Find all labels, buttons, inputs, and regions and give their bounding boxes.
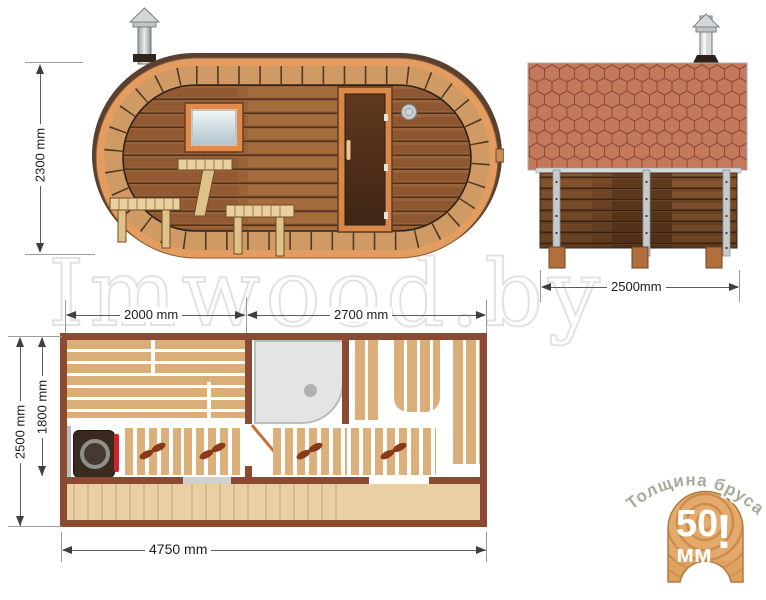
arrow-right-icon [476, 546, 486, 554]
dim-section-right-label: 2700 mm [330, 307, 392, 322]
shingle-roof [528, 63, 747, 170]
door-opening [369, 477, 429, 484]
wall-lamp-icon [402, 105, 417, 120]
dim-end-width-label: 2500mm [607, 279, 666, 294]
arrow-down-icon [38, 466, 46, 476]
arrow-right-icon [235, 311, 245, 319]
footprints-icon [381, 439, 407, 465]
shower-wall [342, 340, 349, 424]
badge-unit: мм [676, 541, 712, 568]
dim-length-line [63, 550, 486, 551]
threshold [183, 477, 231, 484]
door-handle-icon [347, 140, 351, 160]
dim-outer-width-label: 2500 mm [13, 401, 28, 463]
floor-boards [191, 484, 257, 520]
floor-boards [73, 484, 177, 520]
floor-boards [265, 484, 337, 520]
bench-seam [207, 382, 211, 418]
dim-length-label: 4750 mm [145, 541, 211, 557]
heat-shield [67, 426, 71, 478]
window [185, 103, 243, 152]
side-elevation-view [88, 2, 504, 264]
duckboard [125, 428, 181, 475]
duckboard [351, 428, 436, 475]
ext-line [486, 532, 487, 562]
ext-line [486, 300, 487, 333]
ext-line [8, 526, 62, 527]
ext-line [25, 254, 95, 255]
drawing-canvas: Imwood.by [0, 0, 766, 600]
footprints-icon [200, 439, 226, 465]
thickness-badge: 50 мм ! Толщина бруса [615, 430, 765, 590]
stove-pipe-icon [80, 439, 110, 469]
roof-beam [536, 168, 741, 173]
arrow-right-icon [476, 311, 486, 319]
duckboard [273, 428, 347, 475]
bench-beside-shower [355, 340, 381, 420]
arrow-up-icon [38, 337, 46, 347]
ext-line [25, 62, 83, 63]
arrow-down-icon [16, 516, 24, 526]
corridor-floor [67, 484, 480, 520]
bench-rounded [394, 340, 440, 412]
stove-red-panel [114, 434, 119, 472]
side-chimney-icon [130, 8, 159, 64]
footprints-icon [140, 439, 166, 465]
partition-wall [245, 340, 252, 424]
arrow-left-icon [62, 546, 72, 554]
arrow-right-icon [729, 283, 739, 291]
bench-right-wall [453, 340, 480, 464]
footprints-icon [297, 439, 323, 465]
sauna-bench-top [67, 340, 245, 418]
support-feet [549, 247, 722, 268]
end-chimney-icon [692, 14, 720, 65]
end-elevation-view [522, 2, 754, 282]
arrow-up-icon [36, 64, 44, 74]
arrow-left-icon [66, 311, 76, 319]
dim-section-left-label: 2000 mm [120, 307, 182, 322]
ext-line [739, 270, 740, 302]
floor-plan [60, 333, 487, 527]
arrow-up-icon [16, 337, 24, 347]
arrow-down-icon [36, 243, 44, 253]
door [338, 87, 392, 232]
badge-exclaim: ! [716, 506, 732, 559]
wall-shading [540, 173, 737, 248]
arrow-left-icon [541, 283, 551, 291]
dim-inner-width-label: 1800 mm [35, 376, 50, 438]
stove [73, 430, 115, 478]
shower-tray [254, 340, 344, 424]
duckboard [184, 428, 241, 475]
badge-value: 50 [676, 503, 718, 545]
drain-icon [304, 384, 317, 397]
barrel-side-tab [496, 149, 504, 162]
dim-side-height-label: 2300 mm [33, 124, 48, 186]
bench-seam [151, 340, 155, 376]
arrow-left-icon [247, 311, 257, 319]
